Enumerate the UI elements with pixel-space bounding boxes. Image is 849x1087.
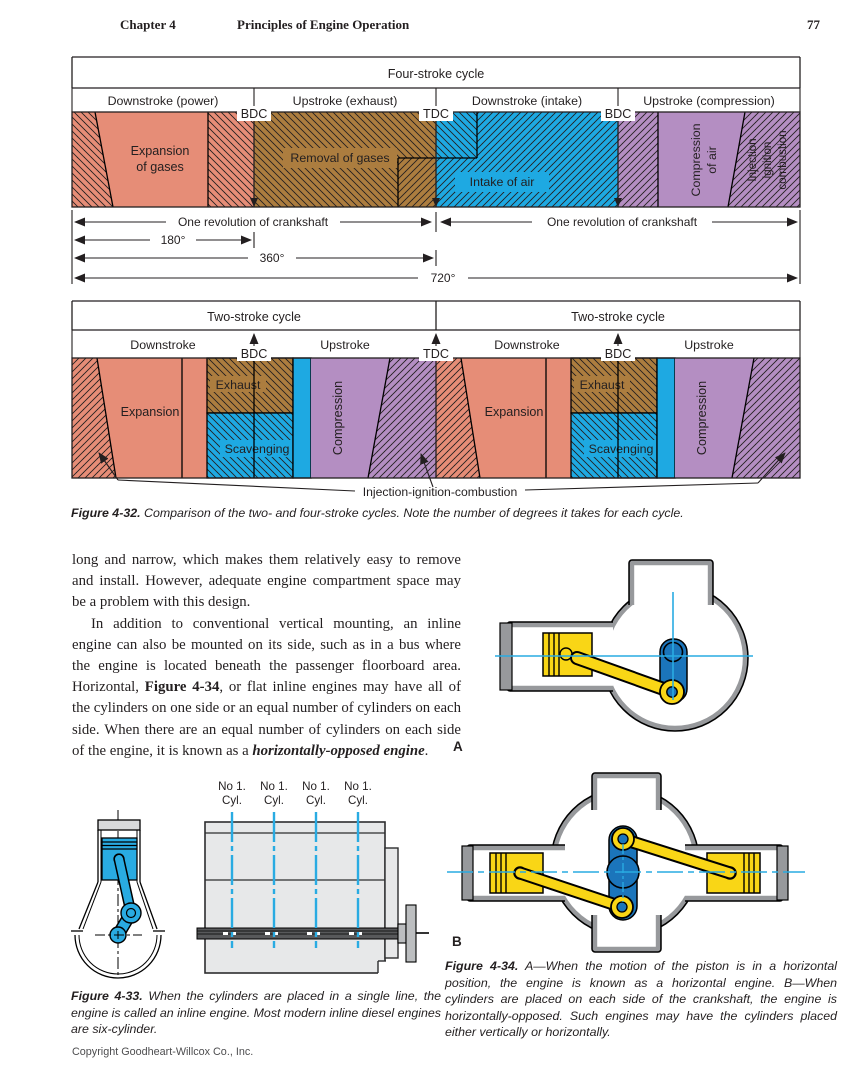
label-injection-line3: combustion: [776, 130, 789, 189]
dim-720: 720°: [431, 271, 456, 285]
marker-bdc2: BDC: [605, 107, 632, 121]
label-expansion-left: Expansion: [121, 405, 180, 419]
textbook-page: Chapter 4 Principles of Engine Operation…: [0, 0, 849, 1087]
figure-4-33-caption: Figure 4-33. When the cylinders are plac…: [71, 988, 441, 1038]
figure-4-33-caption-lead: Figure 4-33.: [71, 989, 143, 1003]
label-compression-line1: Compression: [689, 123, 703, 196]
two-stroke-bar: Expansion Exhaust Scavenging Compression: [72, 346, 800, 478]
dim-rev-left: One revolution of crankshaft: [178, 215, 329, 229]
two-stroke-bdc-left: BDC: [241, 347, 268, 361]
figure-4-32-caption-text: Comparison of the two- and four-stroke c…: [141, 506, 684, 520]
label-expansion-line1: Expansion: [131, 144, 190, 158]
figure-4-34-reference: Figure 4-34: [145, 679, 220, 695]
figure-4-33-diagram: No 1. Cyl. No 1. Cyl. No 1. Cyl. No 1. C…: [70, 773, 446, 987]
cylinder-labels: No 1. Cyl. No 1. Cyl. No 1. Cyl. No 1. C…: [218, 780, 372, 807]
flywheel: [398, 905, 429, 962]
figure-4-34-caption: Figure 4-34. A—When the motion of the pi…: [445, 958, 837, 1041]
label-expansion-line2: of gases: [136, 160, 184, 174]
crank-dimension-arrows: One revolution of crankshaft One revolut…: [72, 210, 800, 285]
label-downstroke-left: Downstroke: [130, 338, 196, 352]
four-stroke-bar: Removal of gases Intake of air Compressi…: [72, 106, 800, 207]
cyl2-label-line1: No 1.: [260, 780, 288, 793]
label-compression-left: Compression: [331, 381, 345, 455]
label-upstroke-left: Upstroke: [320, 338, 370, 352]
label-scavenging-left: Scavenging: [225, 442, 290, 456]
term-horizontally-opposed: horizontally-opposed engine: [252, 743, 424, 759]
col-downstroke-power: Downstroke (power): [108, 94, 219, 108]
two-stroke-tdc: TDC: [423, 347, 449, 361]
copyright-line: Copyright Goodheart-Willcox Co., Inc.: [72, 1046, 253, 1058]
label-injection-ignition-combustion: Injection-ignition-combustion: [363, 485, 517, 499]
dim-180: 180°: [161, 233, 186, 247]
dim-360: 360°: [260, 251, 285, 265]
label-injection-line1: Injection: [746, 138, 759, 181]
marker-tdc: TDC: [423, 107, 449, 121]
engine-cross-section: [71, 810, 165, 978]
page-title: Principles of Engine Operation: [237, 17, 409, 33]
cyl1-label-line2: Cyl.: [222, 794, 242, 807]
label-injection-line2: ignition: [761, 142, 774, 179]
marker-bdc1: BDC: [241, 107, 268, 121]
paragraph-1: long and narrow, which makes them relati…: [72, 550, 461, 614]
two-stroke-bdc-right: BDC: [605, 347, 632, 361]
label-upstroke-right: Upstroke: [684, 338, 734, 352]
crankcase-a: [500, 563, 745, 728]
engine-block: [197, 812, 429, 974]
cyl3-label-line1: No 1.: [302, 780, 330, 793]
dim-rev-right: One revolution of crankshaft: [547, 215, 698, 229]
chapter-label: Chapter 4: [120, 17, 176, 33]
figure-4-32-caption-lead: Figure 4-32.: [71, 506, 141, 520]
label-compression-line2: of air: [705, 146, 719, 174]
figure-4-32-diagram: Four-stroke cycle Downstroke (power) Ups…: [70, 52, 802, 504]
paragraph-2-end: .: [425, 743, 429, 759]
col-upstroke-exhaust: Upstroke (exhaust): [293, 94, 398, 108]
figure-4-34b-label: B: [452, 934, 462, 949]
label-downstroke-right: Downstroke: [494, 338, 560, 352]
page-number: 77: [790, 17, 820, 33]
figure-4-32-caption: Figure 4-32. Comparison of the two- and …: [71, 505, 803, 522]
cyl3-label-line2: Cyl.: [306, 794, 326, 807]
paragraph-2: In addition to conventional vertical mou…: [72, 614, 461, 762]
col-upstroke-compression: Upstroke (compression): [643, 94, 775, 108]
label-removal-of-gases: Removal of gases: [290, 151, 389, 165]
four-stroke-title: Four-stroke cycle: [388, 67, 485, 81]
cyl1-label-line1: No 1.: [218, 780, 246, 793]
two-stroke-title-right: Two-stroke cycle: [571, 310, 665, 324]
label-intake-of-air: Intake of air: [470, 175, 535, 189]
label-expansion-right: Expansion: [485, 405, 544, 419]
label-scavenging-right: Scavenging: [589, 442, 654, 456]
figure-4-34a-label: A: [453, 739, 463, 754]
body-text: long and narrow, which makes them relati…: [72, 550, 461, 762]
four-stroke-header: Four-stroke cycle Downstroke (power) Ups…: [72, 57, 800, 112]
two-stroke-title-left: Two-stroke cycle: [207, 310, 301, 324]
col-downstroke-intake: Downstroke (intake): [472, 94, 582, 108]
figure-4-34b-diagram: B: [445, 770, 845, 956]
label-compression-right: Compression: [695, 381, 709, 455]
figure-4-34-caption-lead: Figure 4-34.: [445, 959, 518, 973]
cyl2-label-line2: Cyl.: [264, 794, 284, 807]
figure-4-34a-diagram: A: [445, 555, 845, 755]
cyl4-label-line2: Cyl.: [348, 794, 368, 807]
cyl4-label-line1: No 1.: [344, 780, 372, 793]
crankshaft: [197, 928, 398, 939]
